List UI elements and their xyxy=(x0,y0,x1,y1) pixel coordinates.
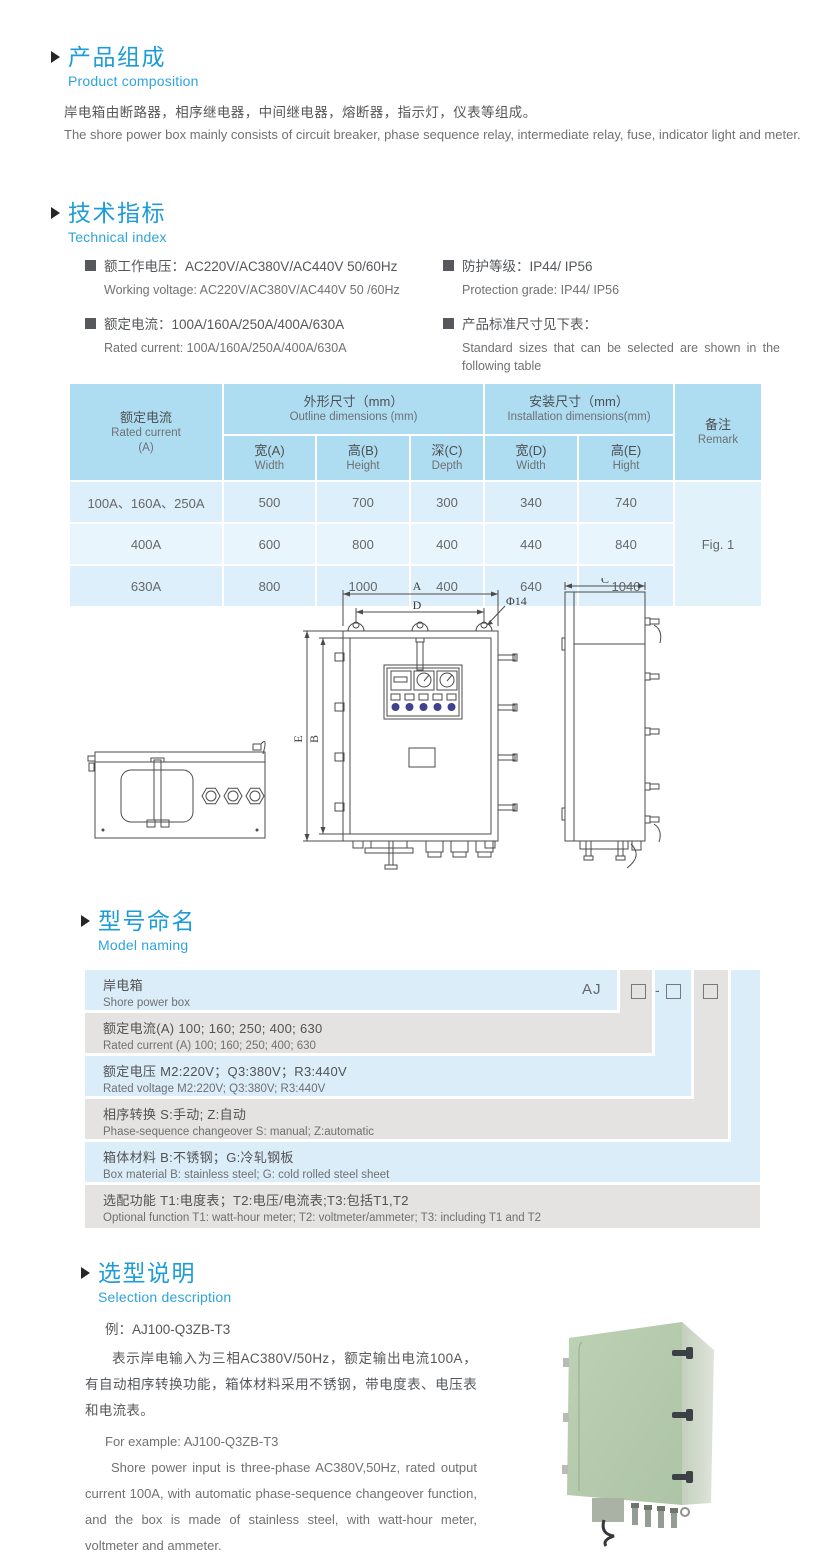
technical-specs: 额工作电压：AC220V/AC380V/AC440V 50/60Hz Worki… xyxy=(85,255,775,379)
spec-en-text: Protection grade: IP44/ IP56 xyxy=(462,281,761,299)
section-header-model-naming: 型号命名 Model naming xyxy=(98,908,196,953)
header-en: Height xyxy=(318,459,408,474)
gland-hexagons xyxy=(202,788,264,804)
cell-height: 800 xyxy=(317,524,409,564)
cell-width: 500 xyxy=(224,482,315,522)
section-header-composition: 产品组成 Product composition xyxy=(68,44,199,89)
section-header-technical: 技术指标 Technical index xyxy=(68,200,167,245)
section-arrow-icon xyxy=(51,207,60,219)
section-arrow-icon xyxy=(81,915,90,927)
selection-example-en: For example: AJ100-Q3ZB-T3 xyxy=(85,1434,477,1449)
header-zh: 高(B) xyxy=(318,442,408,459)
model-row-zh: 额定电流(A) 100; 160; 250; 400; 630 xyxy=(103,1018,652,1037)
model-row-box-material: 箱体材料 B:不锈钢；G:冷轧钢板 Box material B: stainl… xyxy=(85,1142,760,1182)
header-zh: 宽(D) xyxy=(486,442,576,459)
header-en: Remark xyxy=(676,433,760,448)
section-title-zh: 选型说明 xyxy=(98,1260,231,1286)
col-header-depth-c: 深(C) Depth xyxy=(411,436,483,480)
cell-install-width: 440 xyxy=(485,524,577,564)
hinge-icon xyxy=(562,1465,568,1474)
model-row-phase-sequence: 相序转换 S:手动; Z:自动 Phase-sequence changeove… xyxy=(85,1099,728,1139)
hinge-icon xyxy=(563,1413,569,1422)
dim-label-a: A xyxy=(413,579,422,593)
bullet-square-icon xyxy=(443,318,454,329)
cell-depth: 300 xyxy=(411,482,483,522)
model-row-en: Shore power box xyxy=(103,997,617,1009)
header-zh: 额定电流 xyxy=(71,409,221,426)
code-box-function xyxy=(703,984,718,999)
code-strip xyxy=(655,970,691,1056)
section-title-zh: 产品组成 xyxy=(68,44,199,70)
cell-remark: Fig. 1 xyxy=(675,482,761,606)
header-en: Installation dimensions(mm) xyxy=(486,410,672,425)
spec-zh-text: 额工作电压：AC220V/AC380V/AC440V 50/60Hz xyxy=(104,259,397,274)
section-title-zh: 技术指标 xyxy=(68,200,167,226)
model-row-rated-voltage: 额定电压 M2:220V；Q3:380V；R3:440V Rated volta… xyxy=(85,1056,691,1096)
col-header-height-e: 高(E) Hight xyxy=(579,436,673,480)
dim-label-b: B xyxy=(307,735,321,743)
section-title-en: Model naming xyxy=(98,937,196,953)
spec-standard-sizes: 产品标准尺寸见下表： Standard sizes that can be se… xyxy=(443,313,775,379)
model-row-optional-function: 选配功能 T1:电度表；T2:电压/电流表;T3:包括T1,T2 Optiona… xyxy=(85,1185,760,1228)
code-strip xyxy=(731,970,760,1142)
section-title-en: Selection description xyxy=(98,1289,231,1305)
dim-label-hole: Φ14 xyxy=(506,594,527,608)
section-arrow-icon xyxy=(81,1267,90,1279)
selection-example-zh: 例：AJ100-Q3ZB-T3 xyxy=(85,1318,477,1338)
dim-label-d: D xyxy=(413,598,422,612)
bullet-square-icon xyxy=(443,260,454,271)
model-row-zh: 选配功能 T1:电度表；T2:电压/电流表;T3:包括T1,T2 xyxy=(103,1190,760,1209)
spec-working-voltage: 额工作电压：AC220V/AC380V/AC440V 50/60Hz Worki… xyxy=(85,255,443,303)
selection-text: 例：AJ100-Q3ZB-T3 表示岸电输入为三相AC380V/50Hz，额定输… xyxy=(85,1318,477,1559)
header-en: Hight xyxy=(580,459,672,474)
model-prefix: AJ xyxy=(582,981,602,998)
model-row-product: 岸电箱 Shore power box xyxy=(85,970,617,1010)
model-row-en: Rated voltage M2:220V; Q3:380V; R3:440V xyxy=(103,1083,691,1095)
cell-current: 400A xyxy=(70,524,222,564)
catalog-page: 产品组成 Product composition 岸电箱由断路器，相序继电器，中… xyxy=(0,0,830,1568)
cell-height: 700 xyxy=(317,482,409,522)
mounting-foot-drawing xyxy=(365,841,413,869)
bottom-hook xyxy=(603,1520,614,1546)
technical-drawing: A D Φ14 E B C xyxy=(85,578,685,886)
header-zh: 备注 xyxy=(676,416,760,433)
section-header-selection: 选型说明 Selection description xyxy=(98,1260,231,1305)
latch-icons xyxy=(498,654,517,811)
spec-en-text: Rated current: 100A/160A/250A/400A/630A xyxy=(104,339,429,357)
col-header-width-a: 宽(A) Width xyxy=(224,436,315,480)
bullet-square-icon xyxy=(85,318,96,329)
header-en: Depth xyxy=(412,459,482,474)
cell-width: 600 xyxy=(224,524,315,564)
code-box-current xyxy=(631,984,646,999)
cell-current: 100A、160A、250A xyxy=(70,482,222,522)
cell-install-height: 740 xyxy=(579,482,673,522)
selection-desc-zh: 表示岸电输入为三相AC380V/50Hz，额定输出电流100A，有自动相序转换功… xyxy=(85,1346,477,1424)
top-view-drawing xyxy=(88,742,265,838)
spec-protection-grade: 防护等级：IP44/ IP56 Protection grade: IP44/ … xyxy=(443,255,775,303)
code-box-voltage xyxy=(666,984,681,999)
indicator-lights-icons xyxy=(391,694,456,711)
model-row-zh: 额定电压 M2:220V；Q3:380V；R3:440V xyxy=(103,1061,691,1080)
header-zh: 宽(A) xyxy=(225,442,314,459)
spec-en-text: Standard sizes that can be selected are … xyxy=(462,339,780,375)
header-zh: 外形尺寸（mm） xyxy=(225,393,482,410)
table-row: 400A 600 800 400 440 840 xyxy=(70,524,761,564)
product-photo xyxy=(552,1298,727,1548)
table-row: 100A、160A、250A 500 700 300 340 740 Fig. … xyxy=(70,482,761,522)
model-row-en: Phase-sequence changeover S: manual; Z:a… xyxy=(103,1126,728,1138)
section-arrow-icon xyxy=(51,51,60,63)
spec-rated-current: 额定电流：100A/160A/250A/400A/630A Rated curr… xyxy=(85,313,443,379)
model-row-en: Optional function T1: watt-hour meter; T… xyxy=(103,1212,760,1224)
model-row-zh: 相序转换 S:手动; Z:自动 xyxy=(103,1104,728,1123)
section-title-en: Technical index xyxy=(68,229,167,245)
hinge-icon xyxy=(563,1358,569,1367)
model-row-zh: 箱体材料 B:不锈钢；G:冷轧钢板 xyxy=(103,1147,760,1166)
col-header-rated-current: 额定电流 Rated current (A) xyxy=(70,384,222,480)
header-en: Rated current xyxy=(71,426,221,441)
side-view-drawing xyxy=(562,582,661,868)
col-header-remark: 备注 Remark xyxy=(675,384,761,480)
model-naming-diagram: 岸电箱 Shore power box 额定电流(A) 100; 160; 25… xyxy=(85,970,760,1228)
spec-zh-text: 额定电流：100A/160A/250A/400A/630A xyxy=(104,317,344,332)
cell-install-width: 340 xyxy=(485,482,577,522)
cable-glands-icons xyxy=(426,841,493,857)
header-unit: (A) xyxy=(71,441,221,456)
spec-zh-text: 产品标准尺寸见下表： xyxy=(462,317,597,332)
bullet-square-icon xyxy=(85,260,96,271)
cell-install-height: 840 xyxy=(579,524,673,564)
dim-label-c: C xyxy=(601,578,609,586)
box-front-face xyxy=(567,1322,682,1505)
model-row-en: Box material B: stainless steel; G: cold… xyxy=(103,1169,760,1181)
col-header-width-d: 宽(D) Width xyxy=(485,436,577,480)
side-latch-icons xyxy=(645,618,661,842)
bottom-plate xyxy=(592,1498,624,1522)
composition-body-en: The shore power box mainly consists of c… xyxy=(64,127,801,142)
code-dash: - xyxy=(655,982,660,998)
section-title-en: Product composition xyxy=(68,73,199,89)
model-row-rated-current: 额定电流(A) 100; 160; 250; 400; 630 Rated cu… xyxy=(85,1013,652,1053)
col-header-height-b: 高(B) Height xyxy=(317,436,409,480)
dimensions-table: 额定电流 Rated current (A) 外形尺寸（mm） Outline … xyxy=(68,382,763,608)
col-group-installation: 安装尺寸（mm） Installation dimensions(mm) xyxy=(485,384,673,434)
section-title-zh: 型号命名 xyxy=(98,908,196,934)
control-panel-drawing xyxy=(384,665,462,719)
header-zh: 深(C) xyxy=(412,442,482,459)
header-zh: 高(E) xyxy=(580,442,672,459)
front-view-drawing xyxy=(303,590,517,869)
spec-en-text: Working voltage: AC220V/AC380V/AC440V 50… xyxy=(104,281,429,299)
composition-body-zh: 岸电箱由断路器，相序继电器，中间继电器，熔断器，指示灯，仪表等组成。 xyxy=(64,101,537,121)
cable-gland-icons xyxy=(631,1503,689,1528)
dim-label-e: E xyxy=(291,735,305,742)
header-en: Outline dimensions (mm) xyxy=(225,410,482,425)
side-bottom-bracket xyxy=(580,841,641,868)
cell-depth: 400 xyxy=(411,524,483,564)
col-group-outline: 外形尺寸（mm） Outline dimensions (mm) xyxy=(224,384,483,434)
spec-zh-text: 防护等级：IP44/ IP56 xyxy=(462,259,593,274)
selection-desc-en: Shore power input is three-phase AC380V,… xyxy=(85,1455,477,1559)
header-en: Width xyxy=(486,459,576,474)
nameplate-drawing xyxy=(409,748,435,767)
header-zh: 安装尺寸（mm） xyxy=(486,393,672,410)
model-row-en: Rated current (A) 100; 160; 250; 400; 63… xyxy=(103,1040,652,1052)
model-row-zh: 岸电箱 xyxy=(103,975,617,994)
header-en: Width xyxy=(225,459,314,474)
